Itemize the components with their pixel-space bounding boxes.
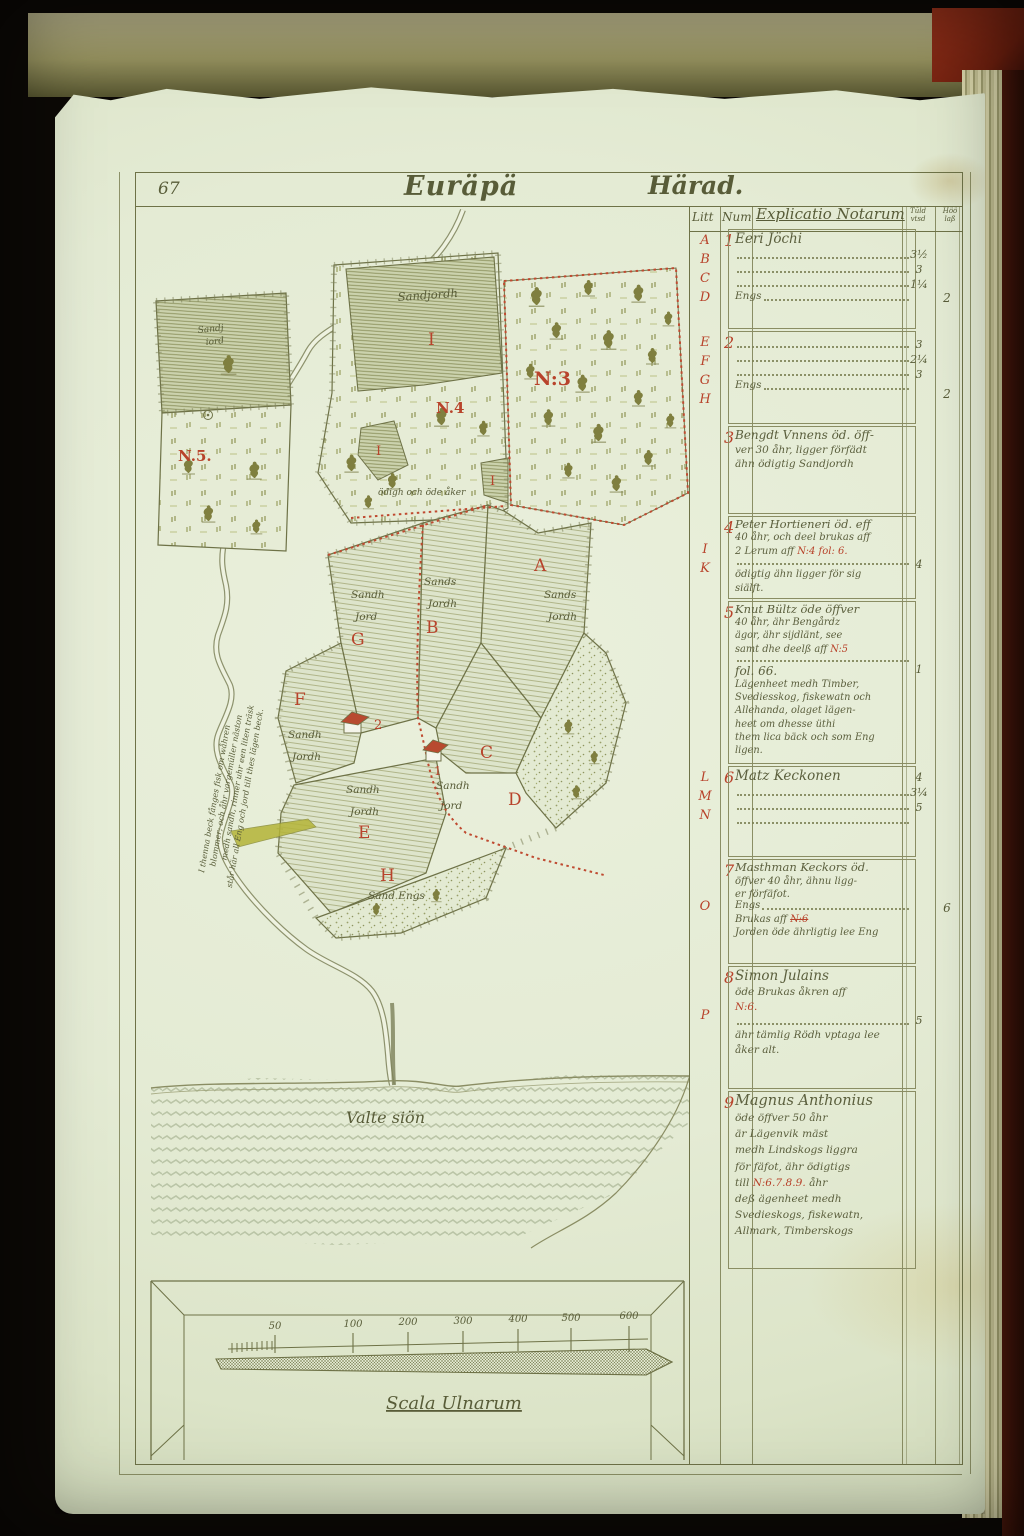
field-parcels [278,505,626,938]
book-photo: 67 Euräpä Härad. [0,0,1024,1536]
table-row: 5 Knut Bültz öde öffver 40 åhr, ähr Beng… [690,601,963,766]
svg-text:Sandh: Sandh [346,784,380,796]
parcel-n4: Sandjordh I I I N.4 ödigh och öde åker [318,253,508,523]
svg-text:50: 50 [269,1321,282,1332]
margin-rule-bottom [119,1474,962,1475]
col-explicatio: Explicatio Notarum [756,205,905,223]
river-annotation: I thenna beck fånges fisk om wåhren blom… [195,698,266,888]
svg-text:Jordh: Jordh [426,598,457,610]
odigh-note: ödigh och öde åker [378,486,466,498]
svg-text:F: F [294,690,306,710]
table-row: 9 Magnus Anthonius öde öffver 50 åhr är … [690,1091,963,1271]
svg-text:Sands: Sands [544,589,577,601]
svg-text:I: I [376,444,381,459]
svg-text:C: C [480,743,493,763]
scale-label: Scala Ulnarum [386,1393,522,1414]
svg-text:Sandh: Sandh [351,589,385,601]
table-row: ABCD 1 Eeri Jöchi Engs 3½31¼ 2 [690,229,963,331]
svg-text:H: H [380,866,395,886]
svg-text:400: 400 [507,1314,528,1325]
svg-text:Sand Engs: Sand Engs [368,890,425,902]
svg-text:300: 300 [453,1316,473,1327]
book-top-edge [28,13,1016,97]
table-row: LMN 6 Matz Keckonen 43¼5 [690,766,963,859]
svg-text:500: 500 [561,1313,581,1324]
col-lass: Höölaß [934,207,966,223]
margin-rule-right [970,172,971,1474]
scale-ticks: 50 100 200 300 400 500 600 [269,1311,640,1332]
table-row: 3 Bengdt Vnnens öd. öff- ver 30 åhr, lig… [690,426,963,516]
map-frame: 67 Euräpä Härad. [135,172,963,1465]
svg-text:100: 100 [343,1319,363,1330]
parcel-n3: N:3 [504,268,688,525]
n4-label: N.4 [436,399,464,417]
svg-text:G: G [351,630,365,650]
manuscript-page: 67 Euräpä Härad. [55,86,985,1514]
col-num: Num [722,210,752,224]
svg-text:Jordh: Jordh [546,611,577,623]
table-row: P 8 Simon Julains öde Brukas åkren aff N… [690,966,963,1091]
svg-text:Jordh: Jordh [348,806,379,818]
svg-text:200: 200 [397,1317,418,1328]
table-row: EFGH 2 Engs 32¼3 2 [690,331,963,426]
scale-bar [151,1281,684,1460]
inset-parcel-n5: Sandj iord N.5. [156,293,291,551]
svg-text:I thenna beck fånges fisk om w: I thenna beck fånges fisk om wåhren blom… [195,698,266,888]
map-drawing: Sandj iord N.5. Sandjordh [136,173,689,1464]
svg-text:A: A [533,556,547,576]
svg-text:I: I [490,474,495,489]
col-litt: Litt [692,210,713,224]
svg-text:D: D [508,790,522,810]
svg-text:iord: iord [205,336,225,348]
table-row: IK 4 Peter Hortieneri öd. eff 40 åhr, oc… [690,516,963,601]
margin-rule-left [119,172,120,1474]
inset-number-label: N.5. [178,447,212,465]
svg-text:600: 600 [619,1311,639,1322]
svg-text:1: 1 [434,764,442,778]
lake-label: Valte siön [346,1108,425,1127]
col-tunland: Tūldvtsd [902,207,934,223]
svg-text:Jordh: Jordh [290,751,321,763]
svg-text:B: B [426,618,439,638]
svg-text:Sandh: Sandh [436,780,470,792]
svg-text:E: E [358,823,370,843]
svg-text:Sands: Sands [424,576,457,588]
svg-text:Jord: Jord [438,800,463,812]
n3-label: N:3 [534,368,571,390]
lake: Valte siön [151,1073,689,1248]
svg-text:2: 2 [374,718,382,733]
explicatio-table: Litt Num Explicatio Notarum Tūldvtsd Höö… [689,207,963,1464]
table-row: O 7 Masthman Keckors öd. öffver 40 åhr, … [690,859,963,966]
book-spine [1002,70,1024,1536]
parcel-i-letter: I [428,330,435,350]
svg-text:Jord: Jord [353,611,378,623]
svg-text:Sandh: Sandh [288,729,322,741]
